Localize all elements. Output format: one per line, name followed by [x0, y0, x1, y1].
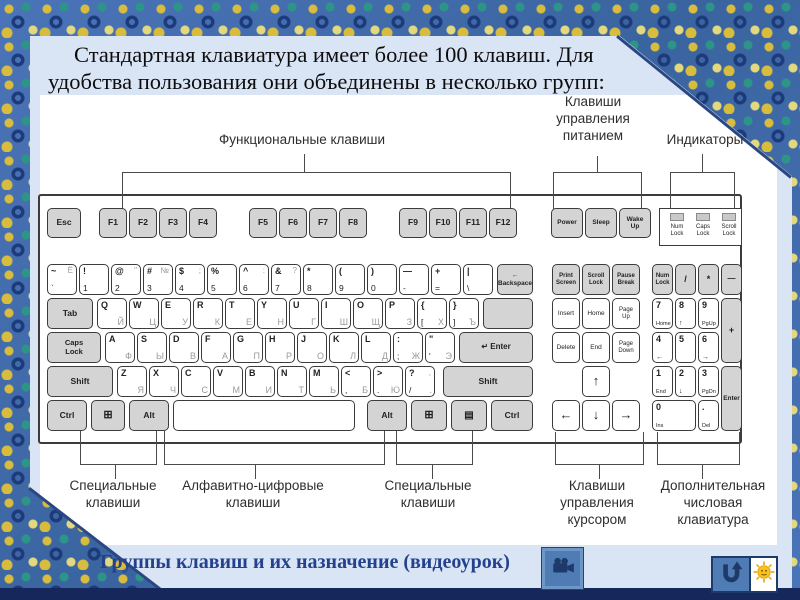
key-0: )0 — [367, 264, 397, 295]
key-legend: ' — [429, 351, 431, 361]
key-delete: Delete — [552, 332, 580, 363]
key-semicolon: :;Ж — [393, 332, 423, 363]
connector-line — [122, 172, 123, 212]
key-legend: 2 — [115, 283, 120, 293]
key-legend: ; — [397, 351, 399, 361]
sun-button[interactable] — [751, 556, 778, 593]
key-l: LД — [361, 332, 391, 363]
key-legend: Ъ — [469, 317, 476, 327]
key-f12: F12 — [489, 208, 517, 238]
key-f7: F7 — [309, 208, 337, 238]
key-legend: Й — [118, 317, 124, 327]
key-power: Power — [551, 208, 583, 238]
key-legend: Е — [246, 317, 252, 327]
group-label-numpad: Дополнительнаячисловаяклавиатура — [661, 477, 765, 528]
connector-line — [80, 464, 157, 465]
key-legend: И — [266, 385, 272, 395]
key-legend: . — [702, 402, 705, 412]
key-c: CС — [181, 366, 211, 397]
indicator-label: ScrollLock — [714, 224, 744, 238]
key-legend: PgUp — [702, 321, 716, 327]
key-arrow-right: → — [612, 400, 640, 431]
key-t: TЕ — [225, 298, 255, 329]
indicator-panel: NumLockCapsLockScrollLock — [659, 208, 742, 246]
key-legend: = — [435, 283, 440, 293]
key-backslash: |\ — [463, 264, 493, 295]
key-legend: Г — [311, 317, 316, 327]
key-legend: 1 — [83, 283, 88, 293]
key-b: BИ — [245, 366, 275, 397]
key-arrow-up: ↑ — [582, 366, 610, 397]
key-r: RК — [193, 298, 223, 329]
key-insert: Insert — [552, 298, 580, 329]
key-x: XЧ — [149, 366, 179, 397]
key-legend: → — [702, 354, 709, 361]
key-np-decimal: .Del — [698, 400, 719, 431]
key-legend: Э — [446, 351, 452, 361]
key-legend: O — [357, 300, 364, 310]
key-legend: Л — [350, 351, 356, 361]
key-arrow-left: ← — [552, 400, 580, 431]
key-4: $;4 — [175, 264, 205, 295]
key-legend: . — [429, 385, 432, 395]
key-np-divide: / — [675, 264, 696, 295]
key-legend: : — [263, 266, 265, 275]
key-i: IШ — [321, 298, 351, 329]
key-legend: B — [249, 368, 256, 378]
key-v: VМ — [213, 366, 243, 397]
connector-line — [657, 464, 740, 465]
key-legend: [ — [421, 317, 423, 327]
title-line-1: Стандартная клавиатура имеет более 100 к… — [48, 42, 738, 69]
key-legend: } — [453, 300, 457, 310]
key-dash: —- — [399, 264, 429, 295]
key-legend: ← — [656, 354, 663, 361]
key-legend: F — [205, 334, 211, 344]
key-f4: F4 — [189, 208, 217, 238]
key-legend: A — [109, 334, 116, 344]
key-np-7: 7Home — [652, 298, 673, 329]
key-legend: 0 — [656, 402, 661, 412]
video-lesson-button[interactable] — [542, 548, 583, 589]
key-legend: Ins — [656, 423, 663, 429]
connector-line — [739, 432, 740, 464]
key-legend: ↑ — [679, 320, 683, 327]
key-y: YН — [257, 298, 287, 329]
indicator-led — [670, 213, 684, 221]
key-ctrl-left: Ctrl — [47, 400, 87, 431]
key-np-3: 3PgDn — [698, 366, 719, 397]
key-legend: 3 — [702, 368, 707, 378]
key-f1: F1 — [99, 208, 127, 238]
key-print-screen: PrintScreen — [552, 264, 580, 295]
key-legend: , — [429, 368, 431, 377]
key-legend: Ч — [170, 385, 176, 395]
key-legend: J — [301, 334, 306, 344]
key-legend: Б — [362, 385, 368, 395]
key-legend: I — [325, 300, 328, 310]
key-w: WЦ — [129, 298, 159, 329]
key-legend: ; — [199, 266, 201, 275]
key-legend: 5 — [679, 334, 684, 344]
key-backspace: ←Backspace — [497, 264, 533, 295]
key-legend: H — [269, 334, 276, 344]
key-f11: F11 — [459, 208, 487, 238]
key-f2: F2 — [129, 208, 157, 238]
key-np-plus: + — [721, 298, 742, 363]
key-legend: К — [215, 317, 220, 327]
key-scroll-lock: ScrollLock — [582, 264, 610, 295]
key-page-up: PageUp — [612, 298, 640, 329]
key-legend: П — [254, 351, 260, 361]
key-legend: Ы — [156, 351, 164, 361]
key-np-8: 8↑ — [675, 298, 696, 329]
key-np-multiply: * — [698, 264, 719, 295]
key-legend: " — [134, 266, 137, 275]
key-np-6: 6→ — [698, 332, 719, 363]
key-space — [173, 400, 355, 431]
key-legend: Х — [438, 317, 444, 327]
key-legend: ! — [83, 266, 86, 276]
key-legend: : — [397, 334, 400, 344]
key-enter: ↵ Enter — [459, 332, 533, 363]
key-ctrl-right: Ctrl — [491, 400, 533, 431]
key-legend: 7 — [275, 283, 280, 293]
key-legend: 2 — [679, 368, 684, 378]
key-legend: Ю — [391, 385, 400, 395]
key-legend: 3 — [147, 283, 152, 293]
key-legend: # — [147, 266, 152, 276]
key-legend: В — [190, 351, 196, 361]
key-7: &?7 — [271, 264, 301, 295]
key-m: MЬ — [309, 366, 339, 397]
key-legend: 9 — [702, 300, 707, 310]
key-pause-break: PauseBreak — [612, 264, 640, 295]
key-5: %5 — [207, 264, 237, 295]
key-legend: Т — [299, 385, 305, 395]
key-legend: 1 — [656, 368, 661, 378]
key-legend: End — [656, 389, 666, 395]
key-legend: 6 — [702, 334, 707, 344]
key-g: GП — [233, 332, 263, 363]
key-menu: ▤ — [451, 400, 487, 431]
key-legend: ? — [409, 368, 415, 378]
key-legend: 9 — [339, 283, 344, 293]
connector-line — [122, 172, 511, 173]
key-f10: F10 — [429, 208, 457, 238]
key-legend: Ц — [149, 317, 156, 327]
group-label-power: Клавишиуправленияпитанием — [556, 93, 630, 144]
connector-line — [553, 172, 642, 173]
key-np-enter: Enter — [721, 366, 742, 431]
key-legend: 4 — [179, 283, 184, 293]
group-label-special-left: Специальныеклавиши — [70, 477, 157, 511]
key-legend: Q — [101, 300, 108, 310]
key-legend: Ш — [340, 317, 348, 327]
connector-line — [396, 464, 473, 465]
key-d: DВ — [169, 332, 199, 363]
key-home: Home — [582, 298, 610, 329]
key-page-down: PageDown — [612, 332, 640, 363]
key-np-5: 5 — [675, 332, 696, 363]
key-legend: + — [435, 266, 440, 276]
key-f5: F5 — [249, 208, 277, 238]
u-turn-arrow-icon — [718, 559, 744, 590]
key-legend: $ — [179, 266, 184, 276]
key-legend: Н — [278, 317, 285, 327]
key-legend: D — [173, 334, 180, 344]
slide: Стандартная клавиатура имеет более 100 к… — [0, 0, 800, 600]
key-quote: "'Э — [425, 332, 455, 363]
key-k: KЛ — [329, 332, 359, 363]
connector-line — [702, 154, 703, 172]
key-legend: 4 — [656, 334, 661, 344]
key-arrow-down: ↓ — [582, 400, 610, 431]
key-legend: & — [275, 266, 282, 276]
key-legend: Home — [656, 321, 671, 327]
key-shift-right: Shift — [443, 366, 533, 397]
key-legend: E — [165, 300, 171, 310]
key-j: JО — [297, 332, 327, 363]
key-legend: Р — [286, 351, 292, 361]
key-legend: Ь — [330, 385, 336, 395]
key-legend: ( — [339, 266, 342, 276]
key-legend: 8 — [307, 283, 312, 293]
key-6: ^:6 — [239, 264, 269, 295]
key-caps-lock: CapsLock — [47, 332, 101, 363]
key-sleep: Sleep — [585, 208, 617, 238]
key-lbracket: {[Х — [417, 298, 447, 329]
connector-line — [555, 432, 556, 464]
key-o: OЩ — [353, 298, 383, 329]
key-num-lock: NumLock — [652, 264, 673, 295]
key-legend: ] — [453, 317, 455, 327]
key-np-minus: — — [721, 264, 742, 295]
key-legend: ~ — [51, 266, 56, 276]
key-q: QЙ — [97, 298, 127, 329]
key-legend: З — [407, 317, 412, 327]
connector-line — [643, 432, 644, 464]
key-legend: , — [345, 385, 347, 395]
key-legend: { — [421, 300, 425, 310]
key-9: (9 — [335, 264, 365, 295]
key-tab: Tab — [47, 298, 93, 329]
key-np-1: 1End — [652, 366, 673, 397]
key-win-left: ⊞ — [91, 400, 125, 431]
key-end: End — [582, 332, 610, 363]
key-legend: А — [222, 351, 228, 361]
key-legend: S — [141, 334, 147, 344]
key-z: ZЯ — [117, 366, 147, 397]
key-a: AФ — [105, 332, 135, 363]
key-legend: P — [389, 300, 395, 310]
key-enter-upper — [483, 298, 533, 329]
key-3: #№3 — [143, 264, 173, 295]
key-legend: 6 — [243, 283, 248, 293]
key-legend: " — [429, 334, 433, 344]
key-legend: ` — [51, 283, 54, 293]
key-np-2: 2↓ — [675, 366, 696, 397]
connector-line — [164, 464, 385, 465]
connector-line — [510, 172, 511, 212]
bottom-strip — [0, 588, 800, 600]
key-legend: ↓ — [679, 388, 683, 395]
key-legend: / — [409, 385, 411, 395]
key-legend: @ — [115, 266, 124, 276]
key-legend: № — [160, 266, 169, 275]
key-legend: W — [133, 300, 142, 310]
key-legend: % — [211, 266, 219, 276]
connector-line — [597, 156, 598, 172]
key-legend: ) — [371, 266, 374, 276]
key-alt-left: Alt — [129, 400, 169, 431]
key-legend: 7 — [656, 300, 661, 310]
key-legend: M — [313, 368, 321, 378]
group-label-indicators: Индикаторы — [667, 131, 744, 148]
key-legend: О — [317, 351, 324, 361]
video-camera-icon — [550, 557, 576, 580]
key-1: !1 — [79, 264, 109, 295]
key-legend: G — [237, 334, 244, 344]
keyboard-diagram: EscF1F2F3F4F5F6F7F8F9F10F11F12PowerSleep… — [38, 194, 742, 444]
key-np-0: 0Ins — [652, 400, 696, 431]
key-legend: Ф — [125, 351, 132, 361]
key-legend: . — [377, 385, 379, 395]
key-legend: L — [365, 334, 371, 344]
group-label-special-right: Специальныеклавиши — [385, 477, 472, 511]
key-legend: N — [281, 368, 288, 378]
key-legend: V — [217, 368, 223, 378]
key-rbracket: }]Ъ — [449, 298, 479, 329]
key-legend: | — [467, 266, 470, 276]
key-2: @"2 — [111, 264, 141, 295]
group-label-cursor: Клавишиуправлениякурсором — [560, 477, 634, 528]
key-win-right: ⊞ — [411, 400, 447, 431]
key-legend: Д — [382, 351, 388, 361]
indicator-led — [696, 213, 710, 221]
key-legend: М — [233, 385, 241, 395]
key-legend: Z — [121, 368, 127, 378]
key-legend: 0 — [371, 283, 376, 293]
key-np-9: 9PgUp — [698, 298, 719, 329]
key-legend: Ж — [412, 351, 420, 361]
key-period: >.Ю — [373, 366, 403, 397]
key-legend: 8 — [679, 300, 684, 310]
key-slash: ?,/. — [405, 366, 435, 397]
key-shift-left: Shift — [47, 366, 113, 397]
key-h: HР — [265, 332, 295, 363]
key-legend: С — [202, 385, 209, 395]
indicator-led — [722, 213, 736, 221]
key-legend: PgDn — [702, 389, 716, 395]
key-legend: Щ — [372, 317, 380, 327]
title-line-2: удобства пользования они объединены в не… — [48, 69, 738, 96]
key-legend: 5 — [211, 283, 216, 293]
key-legend: ? — [293, 266, 297, 275]
key-legend: C — [185, 368, 192, 378]
key-alt-right: Alt — [367, 400, 407, 431]
key-legend: T — [229, 300, 235, 310]
key-tilde: ~Ё` — [47, 264, 77, 295]
key-legend: Del — [702, 423, 710, 429]
key-legend: X — [153, 368, 159, 378]
key-f3: F3 — [159, 208, 187, 238]
key-legend: - — [403, 283, 406, 293]
key-esc: Esc — [47, 208, 81, 238]
key-f: FА — [201, 332, 231, 363]
key-8: *8 — [303, 264, 333, 295]
back-button[interactable] — [711, 556, 751, 593]
key-f6: F6 — [279, 208, 307, 238]
key-legend: * — [307, 266, 311, 276]
key-legend: \ — [467, 283, 469, 293]
caption-text: Группы клавиш и их назначение (видеоурок… — [100, 551, 510, 574]
key-np-4: 4← — [652, 332, 673, 363]
key-p: PЗ — [385, 298, 415, 329]
group-label-functional: Функциональные клавиши — [219, 131, 385, 148]
key-legend: R — [197, 300, 204, 310]
sun-icon — [753, 561, 775, 588]
connector-line — [657, 432, 658, 464]
key-n: NТ — [277, 366, 307, 397]
key-legend: У — [182, 317, 188, 327]
key-u: UГ — [289, 298, 319, 329]
key-wake-up: WakeUp — [619, 208, 651, 238]
key-f9: F9 — [399, 208, 427, 238]
key-legend: Ё — [68, 266, 73, 275]
key-legend: U — [293, 300, 300, 310]
key-legend: ^ — [243, 266, 248, 276]
key-legend: — — [403, 266, 412, 276]
key-f8: F8 — [339, 208, 367, 238]
group-label-alphanumeric: Алфавитно-цифровыеклавиши — [182, 477, 324, 511]
key-legend: Я — [138, 385, 145, 395]
key-e: EУ — [161, 298, 191, 329]
key-comma: <,Б — [341, 366, 371, 397]
key-legend: > — [377, 368, 382, 378]
key-legend: K — [333, 334, 340, 344]
key-legend: < — [345, 368, 350, 378]
connector-line — [670, 172, 735, 173]
key-equals: += — [431, 264, 461, 295]
key-s: SЫ — [137, 332, 167, 363]
connector-line — [304, 154, 305, 172]
key-legend: Y — [261, 300, 267, 310]
